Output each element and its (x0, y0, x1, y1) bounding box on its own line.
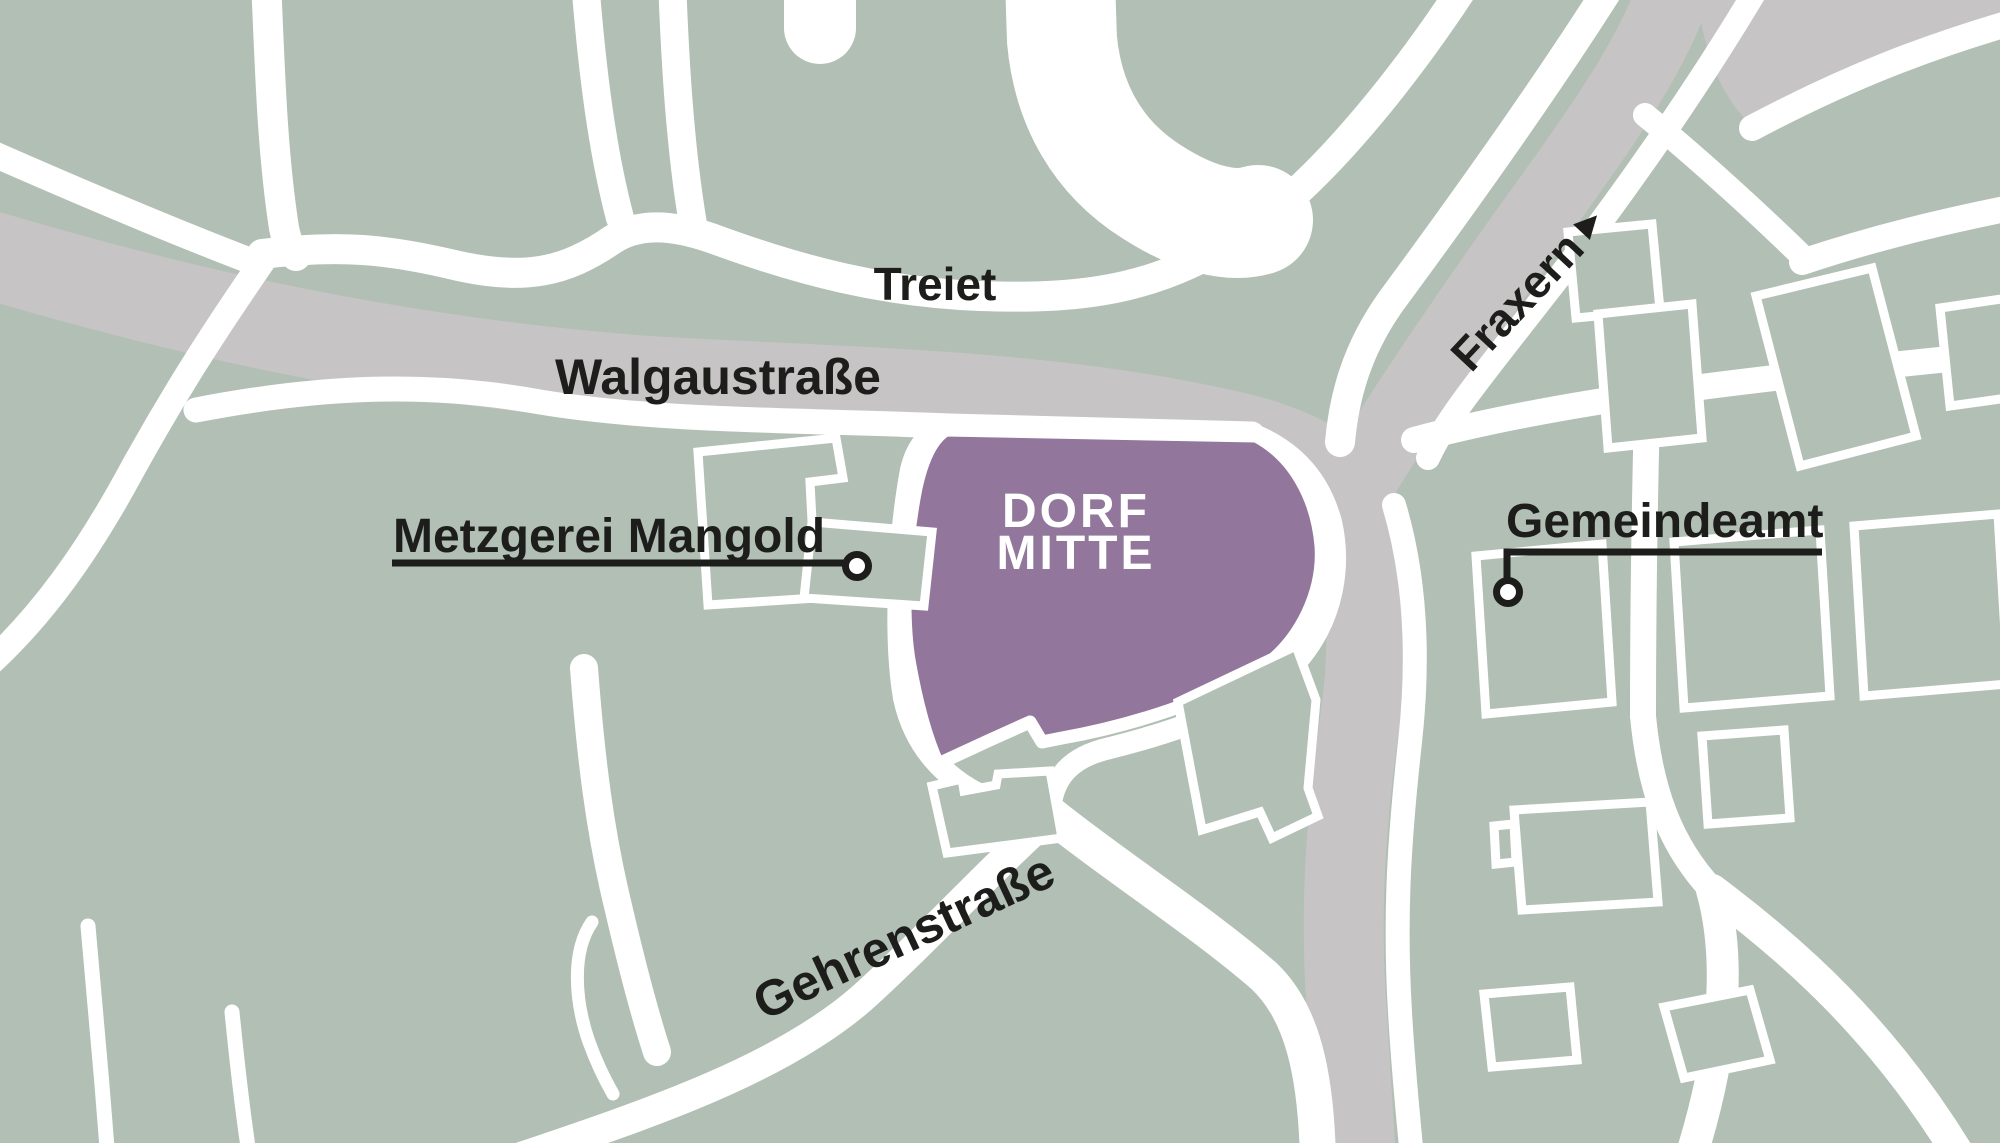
building (1598, 304, 1702, 448)
building (1494, 824, 1516, 864)
road-south-leg (1344, 497, 1367, 1143)
building (1664, 990, 1770, 1078)
gemeindeamt-marker (1497, 581, 1520, 604)
locator-map: Treiet Walgaustraße Fraxern▸ Gehrenstraß… (0, 0, 2000, 1143)
highlight-label-line2: MITTE (997, 527, 1156, 580)
building (1674, 530, 1830, 708)
building (1568, 224, 1660, 318)
building-gemeindeamt (1476, 544, 1612, 714)
building (1514, 802, 1658, 910)
building (1940, 298, 2000, 406)
poi-label-gemeindeamt: Gemeindeamt (1506, 495, 1823, 548)
building (1854, 514, 2000, 696)
street-label-treiet: Treiet (874, 258, 997, 310)
building (1702, 730, 1790, 824)
street-label-walgaustrasse: Walgaustraße (555, 349, 881, 405)
poi-label-metzgerei-mangold: Metzgerei Mangold (393, 510, 825, 563)
metzgerei-mangold-marker (846, 555, 869, 578)
building-stepped (932, 771, 1062, 853)
building (1484, 987, 1577, 1067)
map-canvas: Treiet Walgaustraße Fraxern▸ Gehrenstraß… (0, 0, 2000, 1143)
